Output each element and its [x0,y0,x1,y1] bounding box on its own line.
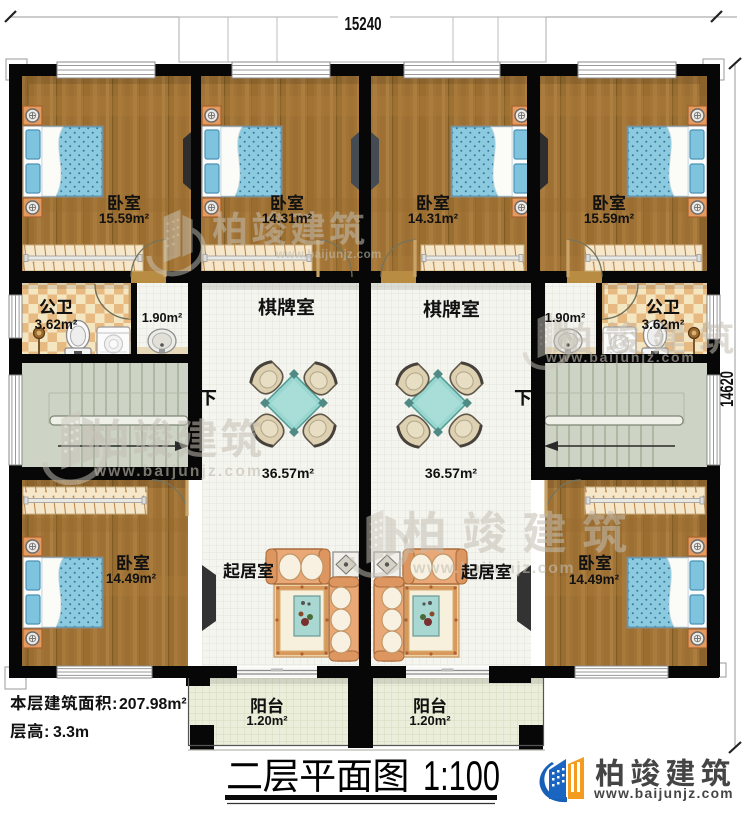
svg-text:1.90m²: 1.90m² [545,310,586,325]
svg-text:www.baijunjz.com: www.baijunjz.com [275,249,382,261]
svg-text::: : [112,695,118,713]
svg-text:www.baijunjz.com: www.baijunjz.com [545,349,696,365]
svg-text:3.3m: 3.3m [53,724,89,741]
svg-text:www.baijunjz.com: www.baijunjz.com [93,463,263,480]
svg-text:15240: 15240 [345,14,382,34]
svg-text:3.62m²: 3.62m² [35,317,78,332]
svg-text:15.59m²: 15.59m² [584,211,635,226]
svg-text::: : [44,723,50,741]
svg-text:14.49m²: 14.49m² [569,572,620,587]
svg-text:3.62m²: 3.62m² [642,317,685,332]
svg-text:14.49m²: 14.49m² [106,571,157,586]
svg-text:www.baijunjz.com: www.baijunjz.com [412,560,575,577]
svg-text:36.57m²: 36.57m² [262,465,314,481]
svg-text:36.57m²: 36.57m² [425,465,477,481]
svg-text:207.98m²: 207.98m² [119,696,187,713]
svg-text:1:100: 1:100 [423,752,500,799]
svg-text:14.31m²: 14.31m² [262,211,313,226]
svg-text:www.baijunjz.com: www.baijunjz.com [593,786,734,801]
svg-text:1.20m²: 1.20m² [409,713,451,728]
svg-text:1.20m²: 1.20m² [246,713,288,728]
svg-text:1.90m²: 1.90m² [142,310,183,325]
svg-text:14.31m²: 14.31m² [408,211,459,226]
svg-text:15.59m²: 15.59m² [99,211,150,226]
